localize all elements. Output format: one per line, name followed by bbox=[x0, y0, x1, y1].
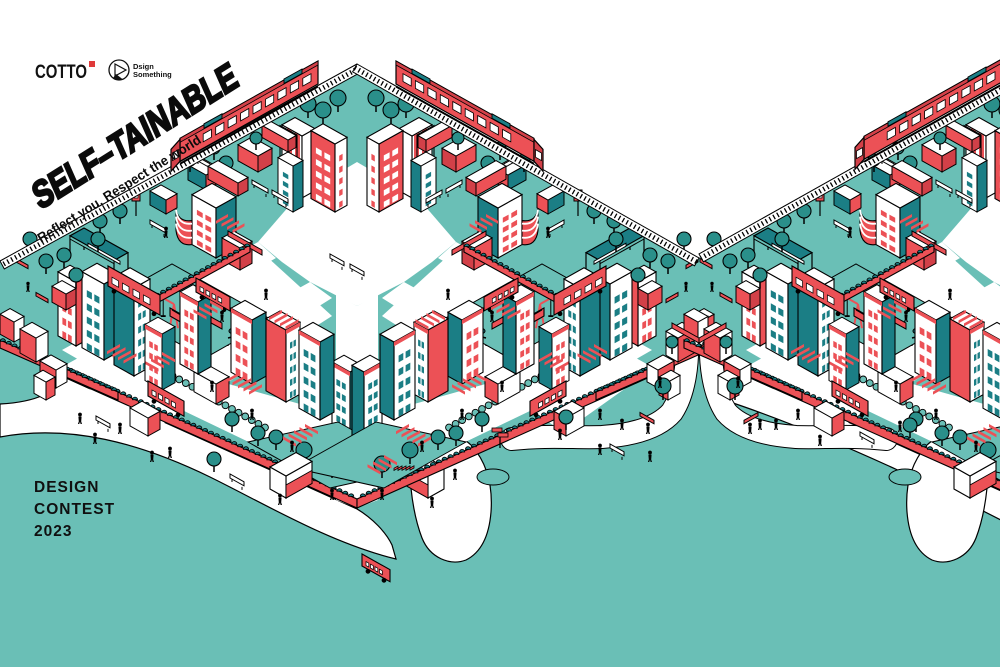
svg-text:COTTO: COTTO bbox=[35, 62, 87, 83]
svg-text:CONTEST: CONTEST bbox=[34, 501, 115, 518]
svg-text:2023: 2023 bbox=[34, 523, 72, 540]
svg-text:Something: Something bbox=[133, 70, 172, 79]
svg-text:DESIGN: DESIGN bbox=[34, 479, 99, 496]
